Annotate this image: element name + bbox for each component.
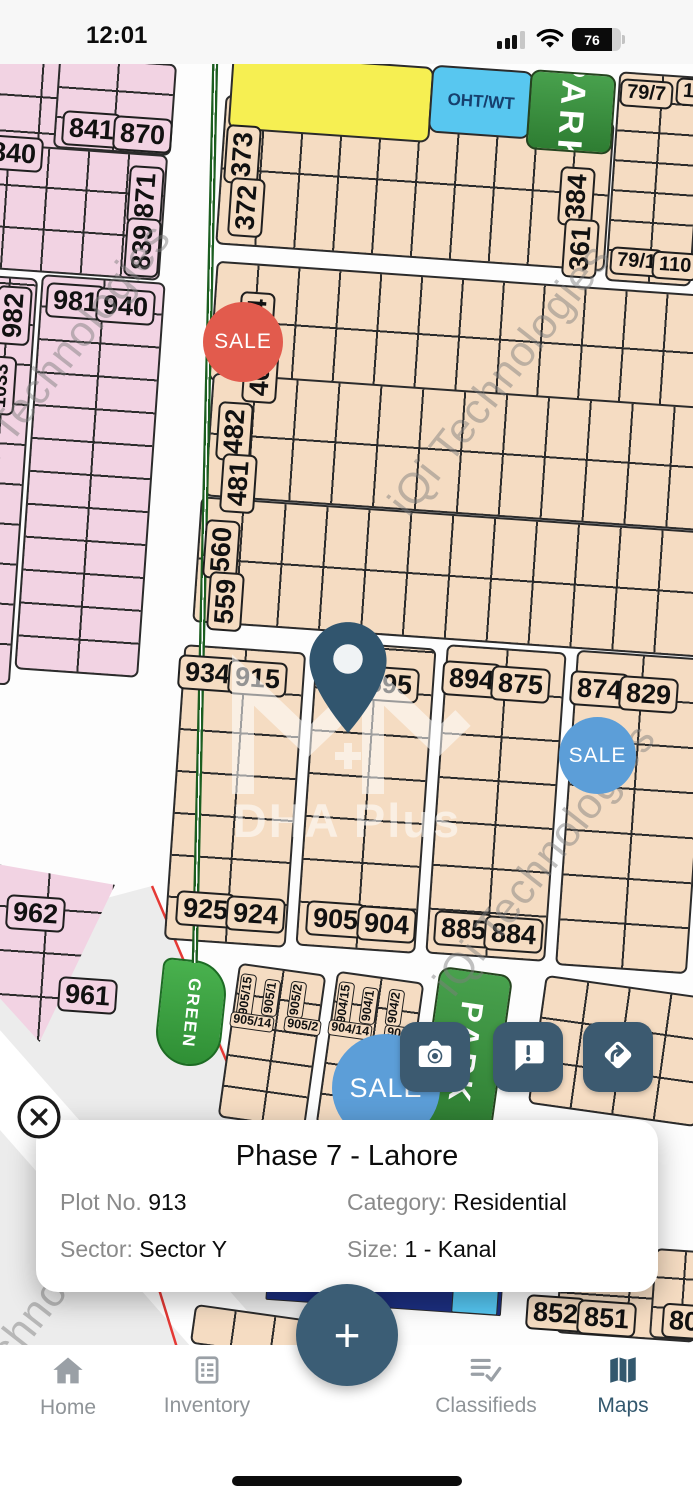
clock: 12:01: [86, 22, 147, 50]
sale-marker-red[interactable]: SALE: [203, 302, 283, 382]
directions-button[interactable]: [583, 1022, 653, 1092]
home-indicator[interactable]: [232, 1476, 462, 1486]
classifieds-icon: [468, 1374, 504, 1391]
inventory-icon: [190, 1374, 224, 1391]
tab-label: Inventory: [142, 1394, 272, 1418]
plot-no-label: Plot No.: [60, 1189, 142, 1215]
plot-label[interactable]: 840: [0, 134, 44, 173]
plot-label[interactable]: 80: [661, 1303, 693, 1341]
plot-label[interactable]: 481: [219, 453, 258, 514]
card-title: Phase 7 - Lahore: [36, 1120, 658, 1173]
camera-button[interactable]: [400, 1022, 470, 1092]
close-card-button[interactable]: [16, 1094, 62, 1140]
plot-label[interactable]: 372: [227, 177, 266, 238]
plot-info-card: Phase 7 - Lahore Plot No. 913 Category: …: [36, 1120, 658, 1292]
app-screen: OHT/WT PARK PARK GREEN 84084187087183998…: [0, 0, 693, 1500]
close-icon: [16, 1127, 62, 1144]
battery-icon: 76: [572, 28, 625, 51]
plot-label[interactable]: 79/7: [619, 78, 674, 109]
plot-no-value: 913: [148, 1189, 186, 1215]
category-value: Residential: [453, 1189, 567, 1215]
tab-label: Home: [3, 1396, 133, 1420]
directions-icon: [595, 1032, 641, 1083]
tab-maps[interactable]: Maps: [558, 1353, 688, 1418]
plot-label[interactable]: 559: [206, 571, 245, 632]
dha-plus-watermark-text: DHA Plus: [213, 793, 481, 848]
wifi-icon: [536, 28, 564, 55]
maps-icon: [606, 1374, 640, 1391]
plot-label[interactable]: 851: [576, 1299, 637, 1338]
camera-icon: [412, 1032, 458, 1083]
sector-label: Sector:: [60, 1236, 133, 1262]
plot-label[interactable]: 924: [225, 895, 286, 934]
plot-label[interactable]: 1: [675, 77, 693, 106]
sale-marker-blue[interactable]: SALE: [559, 717, 636, 794]
report-message-icon: [505, 1032, 551, 1083]
status-bar: 12:01 76: [0, 0, 693, 64]
plot-label[interactable]: 829: [618, 675, 679, 714]
tab-inventory[interactable]: Inventory: [142, 1353, 272, 1418]
category-row: Category: Residential: [347, 1189, 634, 1216]
cellular-signal-icon: [497, 31, 529, 49]
tab-label: Classifieds: [421, 1394, 551, 1418]
tab-home[interactable]: Home: [3, 1353, 133, 1420]
tab-label: Maps: [558, 1394, 688, 1418]
plot-label[interactable]: 110: [651, 250, 693, 281]
diagonal-watermark: iQi Technologies: [379, 235, 621, 526]
plot-label[interactable]: 870: [112, 115, 173, 154]
plot-no-row: Plot No. 913: [60, 1189, 347, 1216]
size-value: 1 - Kanal: [405, 1236, 497, 1262]
diagonal-watermark: iQi Technologies: [0, 215, 181, 506]
sector-row: Sector: Sector Y: [60, 1236, 347, 1263]
size-label: Size:: [347, 1236, 398, 1262]
location-pin[interactable]: [307, 620, 389, 740]
tab-classifieds[interactable]: Classifieds: [421, 1353, 551, 1418]
battery-percent: 76: [572, 28, 612, 51]
home-icon: [50, 1376, 86, 1393]
category-label: Category:: [347, 1189, 447, 1215]
plot-label[interactable]: 961: [57, 976, 118, 1015]
plot-label[interactable]: 982: [0, 285, 33, 346]
sector-value: Sector Y: [139, 1236, 227, 1262]
plot-label[interactable]: 875: [490, 665, 551, 704]
add-button[interactable]: +: [296, 1284, 398, 1386]
plot-label[interactable]: 904: [356, 905, 417, 944]
size-row: Size: 1 - Kanal: [347, 1236, 634, 1263]
plot-label[interactable]: 962: [5, 894, 66, 933]
plot-label[interactable]: 373: [223, 124, 262, 185]
report-button[interactable]: [493, 1022, 563, 1092]
